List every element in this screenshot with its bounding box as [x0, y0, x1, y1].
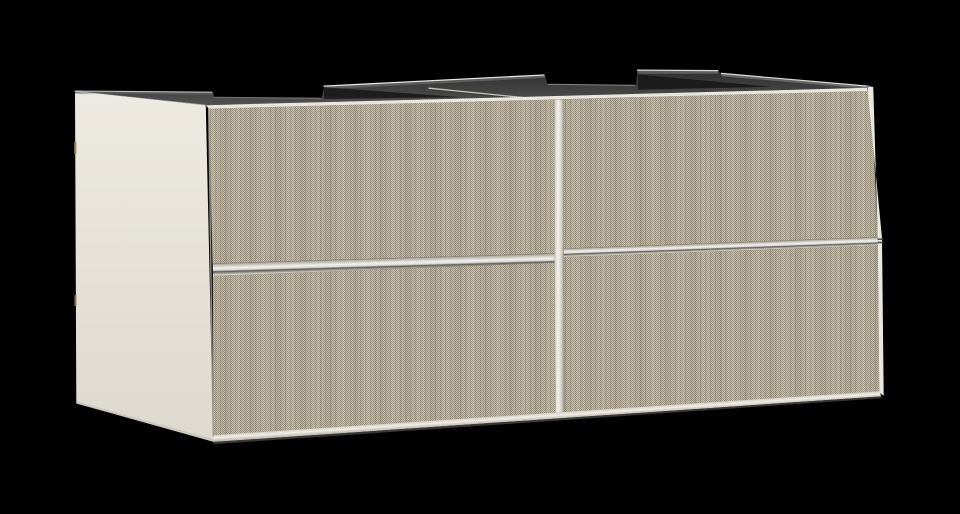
- left-side-panel-face: [75, 91, 213, 442]
- drawer-front-bottom-right: [564, 245, 880, 413]
- drawer-front-top-right: [563, 91, 878, 249]
- product-render: [0, 0, 960, 514]
- drawer-front-bottom-left-banding: [213, 263, 555, 436]
- handle-rail-end-cap-top: [878, 238, 884, 240]
- rear-rail-sliver-lower: [74, 295, 76, 306]
- render-artifact-dot: [867, 85, 869, 87]
- drawer-front-bottom-left: [213, 263, 555, 436]
- vanity-cabinet-render: [0, 0, 960, 514]
- back-rail-highlight-center-right: [638, 70, 719, 71]
- drawer-front-top-right-banding: [563, 91, 878, 249]
- drawer-front-top-left: [209, 99, 555, 263]
- left-side-panel: [75, 91, 213, 442]
- handle-rail-end-cap-bottom: [878, 242, 884, 244]
- rear-rail-sliver-upper: [74, 142, 76, 154]
- drawer-front-bottom-right-banding: [564, 245, 880, 413]
- drawer-front-top-left-banding: [209, 99, 555, 263]
- center-divider-gap: [554, 99, 565, 414]
